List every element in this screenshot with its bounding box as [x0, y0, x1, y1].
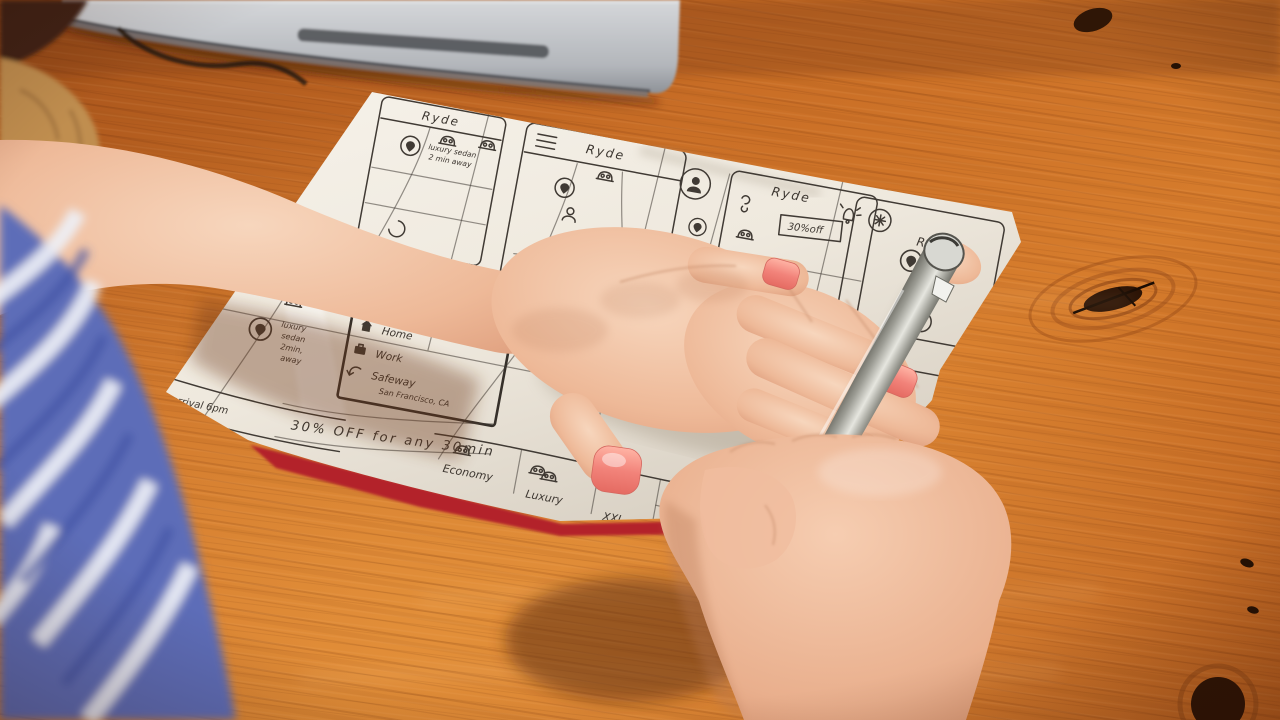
- photo-wireframe-sketching-scene: Ryde luxury sedan 2 min away Ryde: [0, 0, 1280, 720]
- vignette: [0, 0, 1280, 720]
